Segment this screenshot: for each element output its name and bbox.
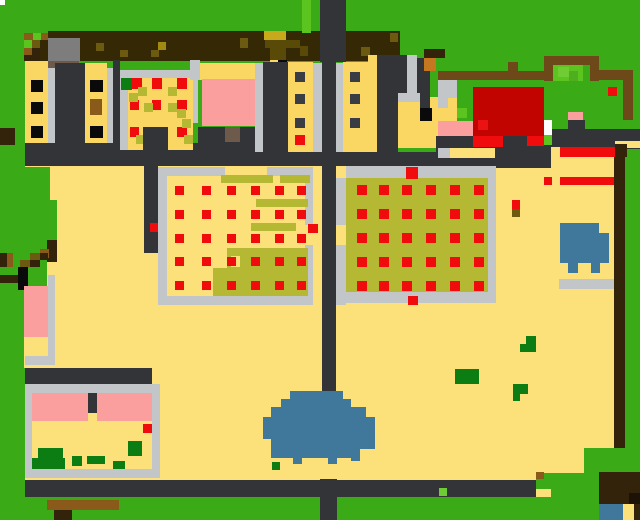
tree-top-left-tile bbox=[40, 40, 48, 61]
bottom-bits-tile bbox=[536, 489, 551, 497]
right-field-tile bbox=[346, 292, 496, 303]
buildings-tile bbox=[420, 108, 432, 121]
buildings-tile bbox=[424, 58, 436, 71]
right-crop-field bbox=[346, 178, 488, 292]
left-field-tile bbox=[150, 223, 158, 232]
small-pond bbox=[560, 223, 599, 263]
branch-tile bbox=[30, 253, 40, 260]
bottom-left-building-tile bbox=[72, 456, 82, 466]
left-field-crop-dots bbox=[202, 186, 211, 195]
barn-area-tile bbox=[448, 148, 495, 158]
left-field-tile bbox=[221, 175, 273, 183]
right-field-crop-dots bbox=[402, 209, 412, 219]
right-field-crop-dots bbox=[357, 209, 367, 219]
right-field-crop-dots bbox=[379, 185, 389, 195]
right-field-crop-dots bbox=[426, 233, 436, 243]
buildings-tile bbox=[31, 102, 43, 114]
tree-top-left-tile bbox=[24, 48, 32, 55]
right-field-crop-dots bbox=[357, 233, 367, 243]
roof-tile bbox=[151, 50, 159, 57]
buildings-tile bbox=[190, 60, 200, 80]
small-pond-tile bbox=[568, 263, 578, 273]
main-pond bbox=[263, 417, 375, 439]
bottom-road-stub bbox=[320, 479, 337, 520]
pond-tile bbox=[271, 407, 366, 417]
right-field-tile bbox=[488, 173, 496, 303]
bottom-bits-tile bbox=[47, 500, 119, 510]
barn-area-tile bbox=[478, 120, 488, 130]
right-field-crop-dots bbox=[379, 209, 389, 219]
mid-scatter-tile bbox=[513, 384, 528, 394]
left-field-crop-dots bbox=[275, 257, 284, 266]
barn-area-tile bbox=[569, 71, 578, 81]
buildings-tile bbox=[113, 60, 120, 152]
left-field-tile bbox=[158, 296, 313, 305]
pig bbox=[568, 112, 583, 120]
left-field-crop-dots bbox=[202, 234, 211, 243]
buildings-tile bbox=[407, 55, 417, 93]
roof-tile bbox=[158, 42, 166, 50]
branch-tile bbox=[7, 260, 13, 267]
barn-area-tile bbox=[508, 62, 518, 71]
alley-1 bbox=[55, 63, 85, 143]
left-field-crop-dots bbox=[175, 186, 184, 195]
right-field-crop-dots bbox=[450, 257, 460, 267]
red-strip-1 bbox=[560, 147, 615, 157]
stone-bar bbox=[559, 279, 614, 289]
branch-tile bbox=[25, 356, 55, 365]
green-areas-tile bbox=[0, 373, 25, 480]
left-field-tile bbox=[158, 176, 167, 305]
barn-area-tile bbox=[615, 144, 627, 157]
mid-scatter-tile bbox=[513, 394, 520, 401]
left-field-tile bbox=[158, 167, 225, 176]
buildings-tile bbox=[31, 80, 43, 92]
left-field-crop-dots bbox=[251, 186, 260, 195]
green-areas-tile bbox=[0, 283, 24, 380]
barn-area-tile bbox=[568, 120, 585, 135]
bottom-left-building-tile bbox=[32, 458, 65, 469]
buildings-tile bbox=[336, 63, 343, 152]
buildings-tile bbox=[350, 72, 360, 82]
bottom-left-building-tile bbox=[113, 461, 125, 469]
buildings-tile bbox=[184, 135, 193, 144]
left-field-crop-dots bbox=[251, 257, 260, 266]
left-field-tile bbox=[251, 223, 296, 231]
left-field-crop-dots bbox=[175, 281, 184, 290]
buildings-tile bbox=[255, 63, 263, 152]
buildings-tile bbox=[368, 55, 377, 63]
buildings-tile bbox=[168, 87, 177, 96]
bottom-road bbox=[25, 480, 536, 497]
bottom-left-building-tile bbox=[97, 393, 152, 421]
barn-area-tile bbox=[512, 200, 520, 209]
left-field-crop-dots bbox=[202, 257, 211, 266]
red-strip-2 bbox=[560, 177, 615, 185]
buildings-tile bbox=[168, 103, 177, 112]
mid-scatter-tile bbox=[526, 336, 536, 344]
buildings-tile bbox=[121, 78, 132, 90]
buildings-tile bbox=[90, 126, 103, 138]
buildings-tile bbox=[424, 49, 445, 58]
left-field-crop-dots bbox=[202, 281, 211, 290]
green-areas-tile bbox=[0, 167, 50, 200]
mid-scatter-tile bbox=[520, 344, 536, 352]
right-field-tile bbox=[406, 167, 418, 179]
right-field-crop-dots bbox=[402, 233, 412, 243]
right-field-crop-dots bbox=[379, 233, 389, 243]
buildings-tile bbox=[177, 78, 187, 89]
right-field-crop-dots bbox=[426, 185, 436, 195]
bottom-bits-tile bbox=[599, 504, 623, 520]
right-field-crop-dots bbox=[357, 185, 367, 195]
buildings-tile bbox=[438, 98, 448, 108]
branch-tile bbox=[48, 265, 57, 275]
farm-map[interactable] bbox=[0, 0, 640, 520]
buildings-tile bbox=[182, 119, 191, 128]
right-field-crop-dots bbox=[379, 281, 389, 291]
barn-area-tile bbox=[473, 136, 503, 147]
bottom-left-building-tile bbox=[128, 441, 142, 456]
left-field-crop-dots bbox=[175, 210, 184, 219]
right-field-crop-dots bbox=[426, 209, 436, 219]
branch-tile bbox=[0, 275, 18, 283]
buildings-tile bbox=[295, 72, 305, 82]
barn-area-tile bbox=[558, 67, 569, 77]
left-field-crop-dots bbox=[297, 234, 306, 243]
bottom-left-building-tile bbox=[32, 393, 88, 421]
right-field-crop-dots bbox=[402, 185, 412, 195]
right-field-crop-dots bbox=[474, 281, 484, 291]
right-field-crop-dots bbox=[450, 233, 460, 243]
mid-scatter-tile bbox=[536, 472, 544, 479]
branch-tile bbox=[0, 253, 7, 260]
buildings-tile bbox=[225, 127, 240, 142]
pond-tile bbox=[293, 458, 302, 464]
buildings-tile bbox=[144, 103, 153, 112]
east-fence-strip bbox=[614, 157, 625, 448]
branch-tile bbox=[48, 275, 55, 365]
small-pond-tile bbox=[599, 233, 609, 263]
left-field-tile bbox=[256, 199, 308, 207]
roof-tile bbox=[120, 50, 128, 57]
buildings-tile bbox=[31, 126, 43, 138]
buildings-tile bbox=[350, 118, 360, 128]
right-field-tile bbox=[408, 296, 418, 305]
barn-area-tile bbox=[544, 135, 552, 145]
tree-top-left-tile bbox=[0, 128, 15, 145]
barn-area-tile bbox=[599, 70, 625, 80]
bottom-left-building-tile bbox=[25, 368, 152, 384]
right-field-crop-dots bbox=[474, 209, 484, 219]
buildings-tile bbox=[398, 93, 420, 102]
bottom-bits-tile bbox=[439, 488, 447, 496]
left-field-crop-dots bbox=[275, 186, 284, 195]
barn-area-tile bbox=[590, 56, 599, 81]
west-pink-structure bbox=[24, 286, 48, 337]
chimney bbox=[48, 38, 80, 61]
pond-tile bbox=[351, 449, 360, 461]
left-field-crop-dots bbox=[227, 257, 236, 266]
left-field-tile bbox=[280, 175, 310, 183]
green-areas-tile bbox=[584, 448, 614, 473]
buildings-tile bbox=[313, 63, 322, 152]
right-field-crop-dots bbox=[426, 257, 436, 267]
roof-tile bbox=[240, 38, 248, 48]
small-pond-tile bbox=[591, 263, 600, 273]
branch-tile bbox=[0, 260, 7, 267]
barn-area-tile bbox=[544, 120, 552, 135]
main-road-vertical bbox=[322, 62, 336, 391]
roof-tile bbox=[300, 46, 308, 56]
buildings-tile bbox=[295, 118, 305, 128]
buildings-tile bbox=[177, 109, 186, 118]
right-field-crop-dots bbox=[450, 209, 460, 219]
buildings-tile bbox=[193, 78, 198, 123]
left-field-crop-dots bbox=[227, 210, 236, 219]
barn-area-tile bbox=[512, 209, 520, 217]
buildings-tile bbox=[263, 62, 288, 152]
branch-tile bbox=[7, 253, 13, 260]
barn-area-tile bbox=[544, 62, 553, 81]
left-field-crop-dots bbox=[275, 234, 284, 243]
pond-tile bbox=[328, 458, 337, 464]
right-field-crop-dots bbox=[357, 257, 367, 267]
buildings-tile bbox=[48, 68, 55, 143]
bottom-left-building-tile bbox=[88, 413, 97, 421]
pond-tile bbox=[271, 439, 375, 449]
tree-top-left-tile bbox=[32, 48, 40, 61]
branch-tile bbox=[30, 260, 40, 267]
main-road-vertical-top bbox=[320, 0, 346, 62]
bottom-left-building-tile bbox=[143, 424, 152, 433]
building-5 bbox=[398, 102, 420, 148]
bottom-left-building-tile bbox=[87, 456, 105, 464]
left-field-crop-dots bbox=[275, 281, 284, 290]
left-field-crop-dots bbox=[297, 210, 306, 219]
right-field-crop-dots bbox=[426, 281, 436, 291]
roof-tile bbox=[96, 43, 104, 51]
left-field-crop-dots bbox=[297, 281, 306, 290]
left-field-crop-dots bbox=[297, 186, 306, 195]
bottom-bits-tile bbox=[634, 504, 640, 520]
left-field-crop-dots bbox=[227, 281, 236, 290]
buildings-tile bbox=[398, 55, 407, 98]
left-field-crop-dots bbox=[251, 281, 260, 290]
green-areas-tile bbox=[457, 79, 473, 108]
buildings-tile bbox=[200, 63, 256, 80]
tree-top-left-tile bbox=[0, 0, 5, 5]
left-field-crop-dots bbox=[175, 257, 184, 266]
roof-tile bbox=[264, 31, 286, 40]
left-field-crop-dots bbox=[175, 234, 184, 243]
buildings-tile bbox=[438, 121, 473, 136]
barn-area-tile bbox=[608, 87, 617, 96]
tree-top-left-tile bbox=[32, 40, 40, 48]
fence bbox=[438, 71, 545, 80]
left-field-crop-dots bbox=[251, 210, 260, 219]
right-field-crop-dots bbox=[450, 281, 460, 291]
right-field-crop-dots bbox=[450, 185, 460, 195]
courtyard-gate bbox=[143, 127, 168, 166]
mid-scatter-tile bbox=[455, 369, 479, 384]
right-field-tile bbox=[336, 225, 346, 245]
right-field-crop-dots bbox=[474, 185, 484, 195]
pond-tile bbox=[280, 449, 360, 458]
left-field-crop-dots bbox=[227, 234, 236, 243]
barn-area-tile bbox=[527, 136, 544, 146]
buildings-tile bbox=[128, 70, 198, 78]
bottom-bits-tile bbox=[54, 510, 72, 520]
bottom-bits-tile bbox=[623, 504, 634, 520]
buildings-tile bbox=[90, 99, 102, 115]
roof-tile bbox=[270, 48, 286, 60]
right-field-crop-dots bbox=[379, 257, 389, 267]
buildings-tile bbox=[377, 55, 398, 152]
buildings-tile bbox=[152, 78, 162, 89]
right-field-crop-dots bbox=[357, 281, 367, 291]
bottom-bits-tile bbox=[629, 493, 640, 504]
pond-tile bbox=[290, 391, 343, 399]
side-road-stub bbox=[144, 166, 158, 253]
buildings-tile bbox=[457, 108, 467, 118]
branch-tile bbox=[20, 260, 30, 267]
left-field-crop-dots bbox=[297, 257, 306, 266]
pink-roof-building bbox=[202, 79, 255, 126]
left-field-crop-dots bbox=[202, 210, 211, 219]
roof-tile bbox=[390, 33, 398, 42]
barn-area-tile bbox=[544, 177, 552, 185]
buildings-tile bbox=[295, 94, 305, 104]
pond-tile bbox=[272, 462, 280, 470]
bottom-left-building-tile bbox=[38, 448, 63, 458]
right-field-crop-dots bbox=[474, 233, 484, 243]
buildings-tile bbox=[138, 87, 147, 96]
right-field-tile bbox=[346, 166, 496, 178]
pond-tile bbox=[281, 399, 351, 407]
buildings-tile bbox=[152, 100, 161, 110]
left-field-crop-dots bbox=[275, 210, 284, 219]
right-field-crop-dots bbox=[474, 257, 484, 267]
buildings-tile bbox=[438, 79, 457, 98]
roof-tile bbox=[265, 40, 300, 48]
tree-top-left-tile bbox=[302, 0, 311, 33]
buildings-tile bbox=[90, 80, 103, 92]
buildings-tile bbox=[129, 93, 138, 102]
barn-area-tile bbox=[623, 70, 633, 120]
barn-area-tile bbox=[438, 148, 450, 158]
tree-top-left-tile bbox=[24, 40, 32, 48]
pond-tile bbox=[271, 449, 280, 458]
bottom-left-building-tile bbox=[88, 393, 97, 413]
branch-tile bbox=[40, 253, 48, 260]
buildings-tile bbox=[350, 94, 360, 104]
left-field-tile bbox=[308, 224, 318, 233]
right-field-crop-dots bbox=[402, 257, 412, 267]
right-field-crop-dots bbox=[402, 281, 412, 291]
building-4 bbox=[343, 62, 377, 152]
left-field-crop-dots bbox=[251, 234, 260, 243]
left-field-crop-dots bbox=[227, 186, 236, 195]
buildings-tile bbox=[295, 135, 305, 145]
